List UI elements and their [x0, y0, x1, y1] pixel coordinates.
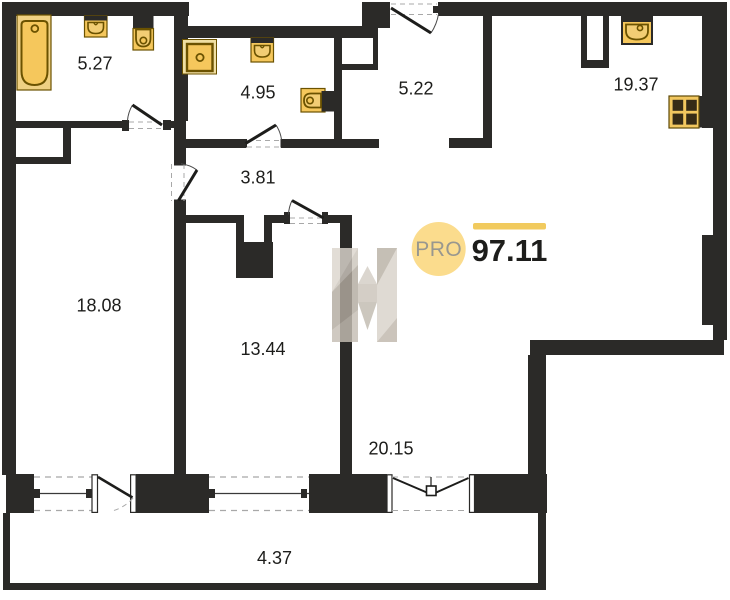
- svg-text:13.44: 13.44: [240, 339, 285, 359]
- svg-text:18.08: 18.08: [76, 296, 121, 316]
- svg-text:4.95: 4.95: [240, 83, 275, 103]
- svg-text:3.81: 3.81: [240, 168, 275, 188]
- svg-text:5.27: 5.27: [77, 54, 112, 74]
- svg-text:4.37: 4.37: [257, 548, 292, 568]
- svg-text:5.22: 5.22: [398, 79, 433, 99]
- svg-text:PRO: PRO: [415, 238, 462, 261]
- svg-text:97.11: 97.11: [472, 233, 548, 268]
- svg-text:20.15: 20.15: [368, 439, 413, 459]
- svg-text:19.37: 19.37: [613, 75, 658, 95]
